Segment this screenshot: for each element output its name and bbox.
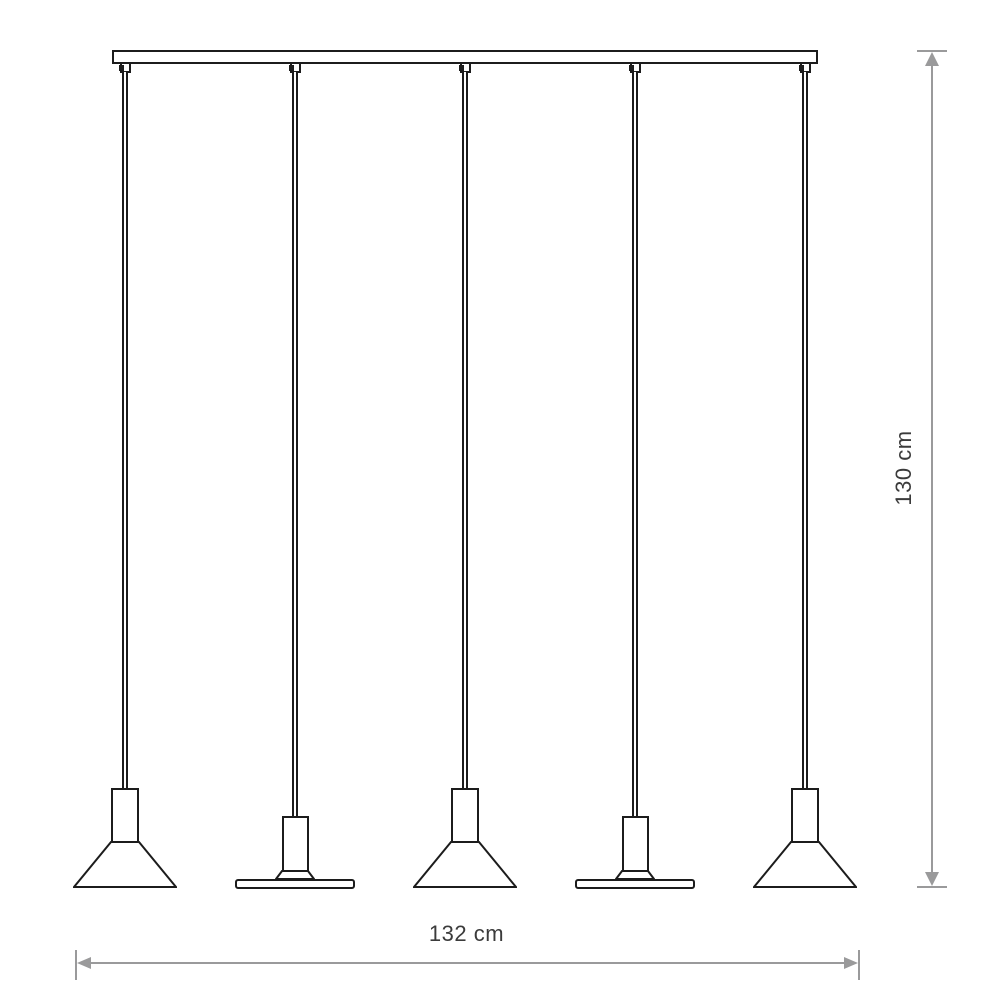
cone-shade [753,841,857,888]
height-dim-tick-bottom [917,886,947,888]
disc-shade [235,879,355,889]
cord-clamp-mark [799,65,804,71]
lamp-socket [282,816,309,872]
arrow-up-icon [925,52,939,66]
width-dim-tick-right [858,950,860,980]
cord-clamp-mark [629,65,634,71]
pendant-5-cone [745,0,865,900]
suspension-cord [802,72,808,790]
suspension-cord [292,72,298,818]
disc-shade [575,879,695,889]
cone-shade [413,841,517,888]
height-dimension-label: 130 cm [891,420,917,516]
suspension-cord [122,72,128,790]
lamp-socket [622,816,649,872]
cord-clamp-mark [119,65,124,71]
lamp-socket [791,788,819,843]
lamp-technical-drawing: 132 cm 130 cm [0,0,1000,1000]
lamp-socket [451,788,479,843]
arrow-down-icon [925,872,939,886]
pendant-3-cone [405,0,525,900]
pendant-1-cone [65,0,185,900]
height-dimension-line [931,64,933,875]
suspension-cord [632,72,638,818]
width-dimension-line [89,962,846,964]
cone-shade [73,841,177,888]
arrow-left-icon [77,957,91,969]
cord-clamp-mark [289,65,294,71]
suspension-cord [462,72,468,790]
lamp-socket [111,788,139,843]
arrow-right-icon [844,957,858,969]
cord-clamp-mark [459,65,464,71]
width-dimension-label: 132 cm [75,921,858,947]
pendant-4-disc [575,0,695,900]
pendant-2-disc [235,0,355,900]
